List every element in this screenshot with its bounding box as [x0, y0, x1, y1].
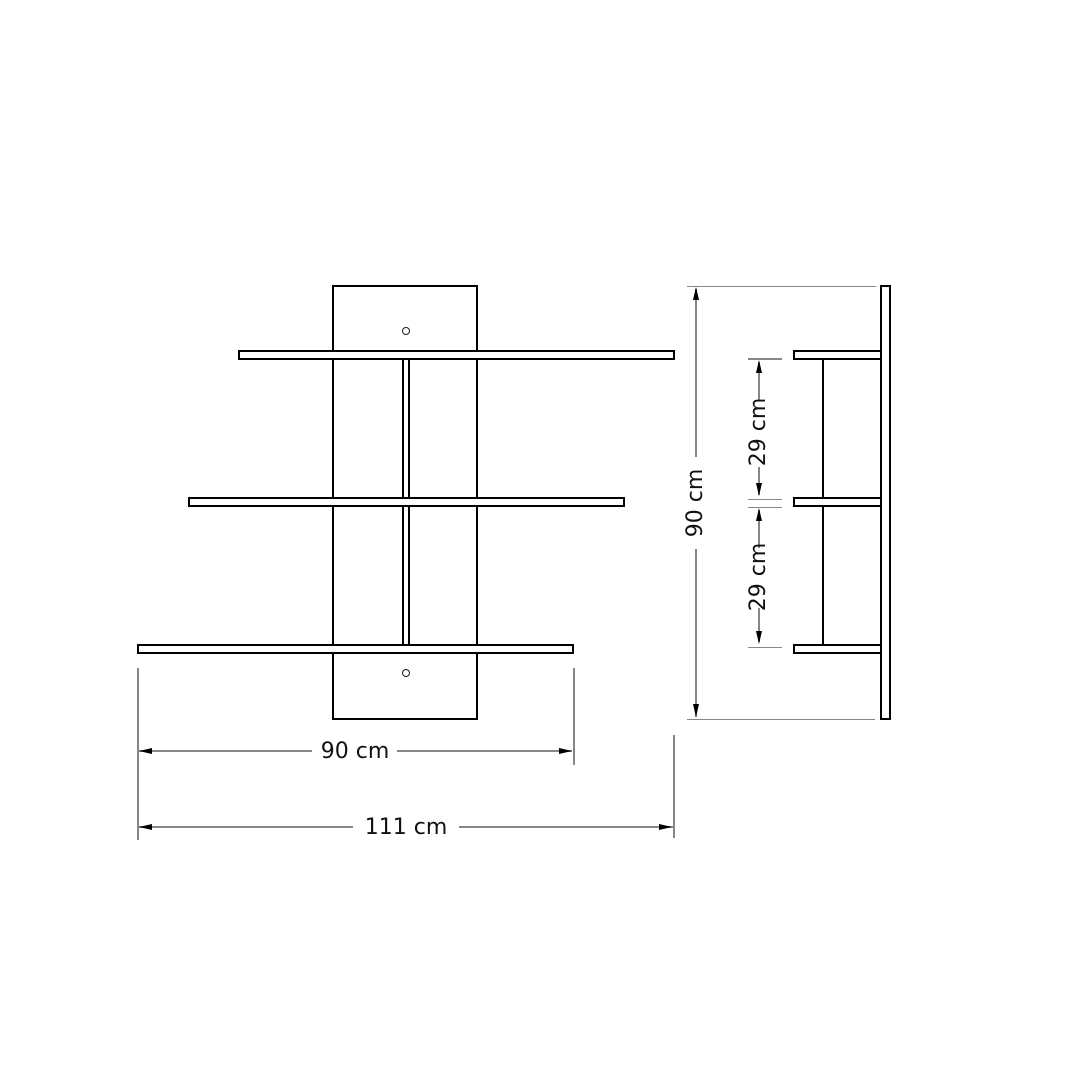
extension-tick	[748, 358, 782, 360]
arrow-down-icon	[756, 483, 762, 496]
arrow-up-icon	[756, 360, 762, 373]
extension-line	[687, 286, 876, 288]
extension-tick	[748, 507, 782, 509]
arrow-right-icon	[659, 824, 672, 830]
dimension-line	[459, 826, 673, 828]
middle-shelf	[188, 497, 625, 507]
arrow-right-icon	[559, 748, 572, 754]
arrow-down-icon	[693, 704, 699, 717]
top-shelf	[238, 350, 675, 360]
extension-tick	[748, 499, 782, 501]
total-height-label: 90 cm	[685, 469, 707, 538]
dimension-line	[695, 289, 697, 457]
screw-hole-bottom	[402, 669, 410, 677]
lower-gap-label: 29 cm	[748, 543, 770, 612]
shelf-technical-drawing: 90 cm 111 cm 90 cm 29 cm 29 c	[0, 0, 1080, 1080]
dimension-line	[139, 826, 353, 828]
side-middle-shelf	[793, 497, 882, 507]
extension-line	[573, 668, 575, 765]
shelf-width-label: 90 cm	[321, 741, 390, 763]
side-bottom-shelf	[793, 644, 882, 654]
total-width-label: 111 cm	[365, 817, 448, 839]
extension-line	[687, 719, 875, 721]
side-top-shelf	[793, 350, 882, 360]
upper-gap-label: 29 cm	[748, 398, 770, 467]
dimension-line	[397, 750, 572, 752]
screw-hole-top	[402, 327, 410, 335]
arrow-left-icon	[139, 824, 152, 830]
dimension-line	[139, 750, 312, 752]
arrow-up-icon	[693, 287, 699, 300]
bottom-shelf	[137, 644, 574, 654]
dimension-line	[695, 549, 697, 717]
extension-line	[673, 735, 675, 838]
arrow-down-icon	[756, 631, 762, 644]
arrow-left-icon	[139, 748, 152, 754]
extension-tick	[748, 647, 782, 649]
extension-line	[137, 668, 139, 840]
arrow-up-icon	[756, 508, 762, 521]
